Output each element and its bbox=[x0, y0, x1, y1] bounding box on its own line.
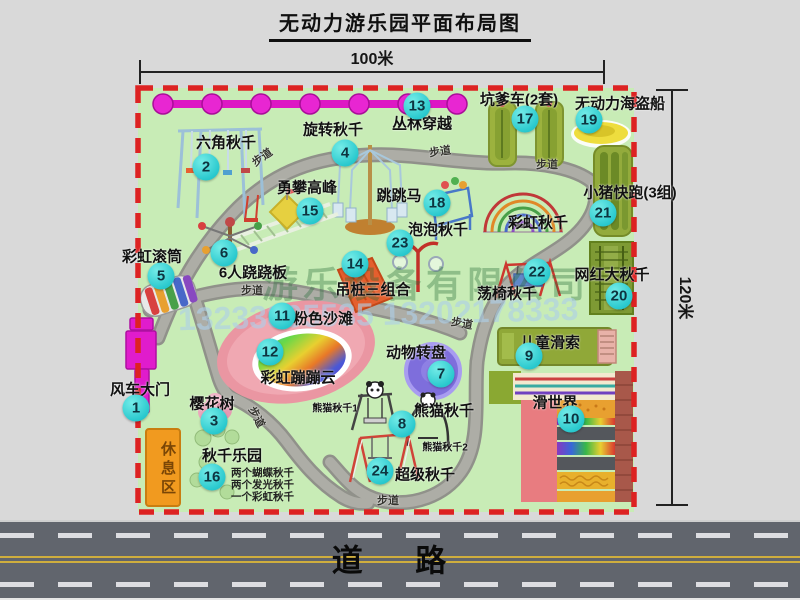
item-badge-11: 11 bbox=[269, 303, 296, 330]
item-label-jumping-horse: 跳跳马 bbox=[376, 185, 421, 206]
road: 道 路 bbox=[0, 520, 800, 600]
item-badge-17: 17 bbox=[512, 106, 539, 133]
item-label-super-swing: 超级秋千 bbox=[395, 464, 455, 485]
item-badge-14: 14 bbox=[342, 251, 369, 278]
item-badge-19: 19 bbox=[576, 107, 603, 134]
item-label-panda-swing: 熊猫秋千 bbox=[414, 400, 474, 421]
walkway-label: 步道 bbox=[377, 492, 399, 508]
item-badge-18: 18 bbox=[424, 190, 451, 217]
item-label-animal-turntable: 动物转盘 bbox=[386, 342, 446, 363]
road-label: 道 路 bbox=[332, 536, 469, 581]
item-badge-23: 23 bbox=[387, 230, 414, 257]
item-label-pink-beach: 粉色沙滩 bbox=[293, 308, 353, 329]
item-badge-22: 22 bbox=[524, 259, 551, 286]
item-label-rainbow-roller: 彩虹滚筒 bbox=[122, 246, 182, 267]
item-label-swing-chair: 荡椅秋千 bbox=[477, 283, 537, 304]
item-badge-16: 16 bbox=[199, 464, 226, 491]
item-badge-4: 4 bbox=[332, 140, 359, 167]
item-label-hanging-piles: 吊桩三组合 bbox=[335, 279, 410, 300]
item-badge-13: 13 bbox=[404, 93, 431, 120]
item-badge-7: 7 bbox=[428, 361, 455, 388]
walkway-label: 步道 bbox=[428, 142, 452, 161]
item-badge-24: 24 bbox=[367, 458, 394, 485]
swing-park-sub-3: 一个彩虹秋千 bbox=[231, 489, 294, 504]
item-label-big-swing: 网红大秋千 bbox=[574, 264, 649, 285]
item-badge-12: 12 bbox=[257, 339, 284, 366]
rainbow-swing-label: 彩虹秋千 bbox=[508, 212, 568, 233]
item-badge-10: 10 bbox=[558, 406, 585, 433]
rest-area-label: 休息区 bbox=[150, 436, 178, 502]
item-badge-20: 20 bbox=[606, 283, 633, 310]
item-badge-3: 3 bbox=[201, 408, 228, 435]
item-badge-21: 21 bbox=[590, 200, 617, 227]
item-label-bubble-swing: 泡泡秋千 bbox=[408, 219, 468, 240]
item-label-swing-park: 秋千乐园 bbox=[202, 445, 262, 466]
item-badge-2: 2 bbox=[193, 154, 220, 181]
item-badge-6: 6 bbox=[211, 240, 238, 267]
item-badge-1: 1 bbox=[123, 395, 150, 422]
walkway-label: 步道 bbox=[241, 282, 263, 298]
item-badge-9: 9 bbox=[516, 343, 543, 370]
park-layout-plan: 无动力游乐园平面布局图 100米 120米 bbox=[0, 0, 800, 600]
panda-swing-1-label: 熊猫秋千1 bbox=[312, 400, 358, 415]
item-label-hexagon-swing: 六角秋千 bbox=[196, 132, 256, 153]
item-label-rainbow-cloud: 彩虹蹦蹦云 bbox=[260, 367, 335, 388]
panda-swing-2-label: 熊猫秋千2 bbox=[422, 439, 468, 454]
walkway-label: 步道 bbox=[536, 156, 558, 172]
item-badge-15: 15 bbox=[297, 198, 324, 225]
road-lane-dash-bottom bbox=[0, 582, 800, 587]
item-badge-5: 5 bbox=[148, 263, 175, 290]
item-label-climbing-peak: 勇攀高峰 bbox=[277, 177, 337, 198]
item-label-rotating-swing: 旋转秋千 bbox=[303, 119, 363, 140]
item-badge-8: 8 bbox=[389, 411, 416, 438]
